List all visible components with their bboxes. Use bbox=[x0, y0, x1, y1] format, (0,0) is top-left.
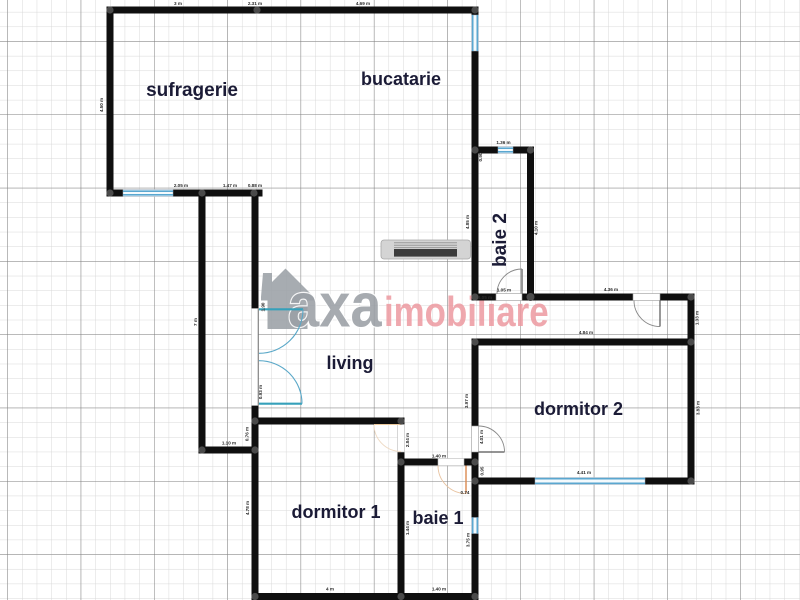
svg-text:0.74: 0.74 bbox=[461, 490, 470, 495]
svg-text:0.95: 0.95 bbox=[480, 466, 485, 475]
svg-text:bucatarie: bucatarie bbox=[361, 69, 441, 89]
svg-text:4.36 m: 4.36 m bbox=[604, 287, 618, 292]
svg-text:living: living bbox=[326, 353, 373, 373]
svg-text:dormitor 1: dormitor 1 bbox=[291, 502, 380, 522]
svg-text:1.10 m: 1.10 m bbox=[222, 441, 236, 446]
svg-text:0.88 m: 0.88 m bbox=[248, 183, 262, 188]
svg-text:0.90: 0.90 bbox=[478, 152, 483, 161]
svg-text:3 m: 3 m bbox=[174, 1, 182, 6]
svg-text:3.97 m: 3.97 m bbox=[464, 394, 469, 408]
svg-text:7 m: 7 m bbox=[193, 318, 198, 326]
svg-text:1.90: 1.90 bbox=[261, 302, 266, 311]
svg-text:1.05 m: 1.05 m bbox=[497, 288, 511, 293]
svg-text:4.69 m: 4.69 m bbox=[356, 1, 370, 6]
svg-text:1.33 m: 1.33 m bbox=[695, 311, 700, 325]
svg-text:4.41 m: 4.41 m bbox=[577, 470, 591, 475]
svg-text:1.40 m: 1.40 m bbox=[432, 454, 446, 459]
svg-text:4.85 m: 4.85 m bbox=[465, 215, 470, 229]
svg-text:4 m: 4 m bbox=[326, 587, 334, 592]
svg-text:0.76 m: 0.76 m bbox=[245, 427, 250, 441]
svg-text:1.40 m: 1.40 m bbox=[432, 587, 446, 592]
svg-text:2.05 m: 2.05 m bbox=[174, 183, 188, 188]
svg-text:baie 1: baie 1 bbox=[412, 508, 463, 528]
svg-text:1.47 m: 1.47 m bbox=[223, 183, 237, 188]
svg-text:4.78 m: 4.78 m bbox=[245, 501, 250, 515]
svg-text:3.75 m: 3.75 m bbox=[466, 533, 471, 547]
svg-text:3.05 m: 3.05 m bbox=[478, 295, 492, 300]
svg-text:3.83 m: 3.83 m bbox=[696, 401, 701, 415]
svg-text:axa: axa bbox=[288, 270, 383, 340]
svg-text:4.84 m: 4.84 m bbox=[579, 330, 593, 335]
svg-text:4.50 m: 4.50 m bbox=[99, 98, 104, 112]
svg-text:dormitor 2: dormitor 2 bbox=[534, 399, 623, 419]
svg-text:4.10 m: 4.10 m bbox=[534, 221, 539, 235]
svg-text:1.36 m: 1.36 m bbox=[496, 140, 510, 145]
svg-text:2.84 m: 2.84 m bbox=[405, 433, 410, 447]
svg-text:0.93 m: 0.93 m bbox=[258, 385, 263, 399]
svg-text:1.44 m: 1.44 m bbox=[405, 521, 410, 535]
svg-text:sufragerie: sufragerie bbox=[146, 80, 238, 101]
svg-text:4.01 m: 4.01 m bbox=[479, 430, 484, 444]
svg-text:2.31 m: 2.31 m bbox=[248, 1, 262, 6]
svg-text:baie 2: baie 2 bbox=[490, 213, 511, 267]
